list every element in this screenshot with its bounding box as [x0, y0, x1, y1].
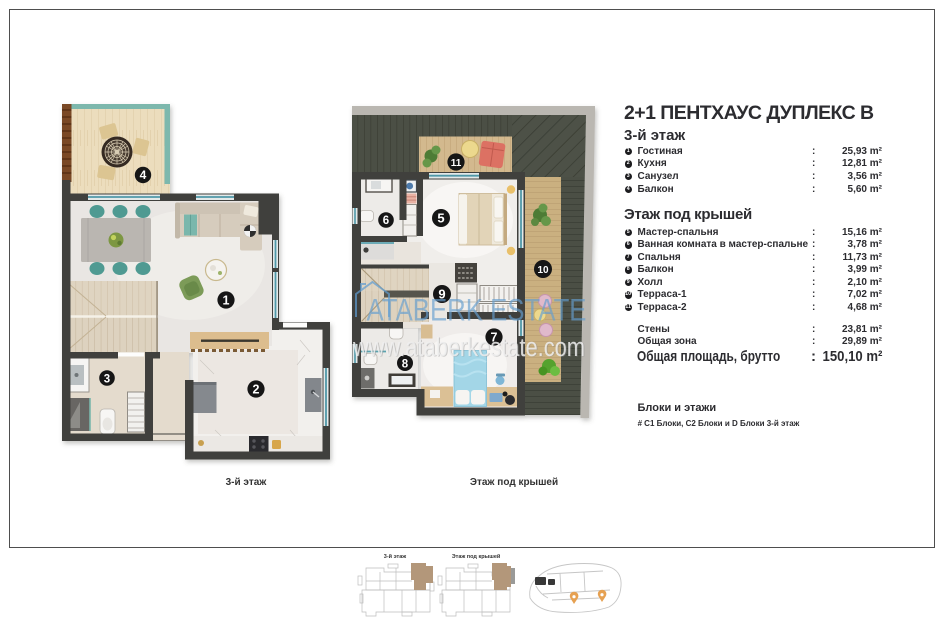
svg-text:ATABERK ESTATE: ATABERK ESTATE — [367, 291, 587, 327]
svg-text:www.ataberkestate.com: www.ataberkestate.com — [352, 334, 585, 362]
